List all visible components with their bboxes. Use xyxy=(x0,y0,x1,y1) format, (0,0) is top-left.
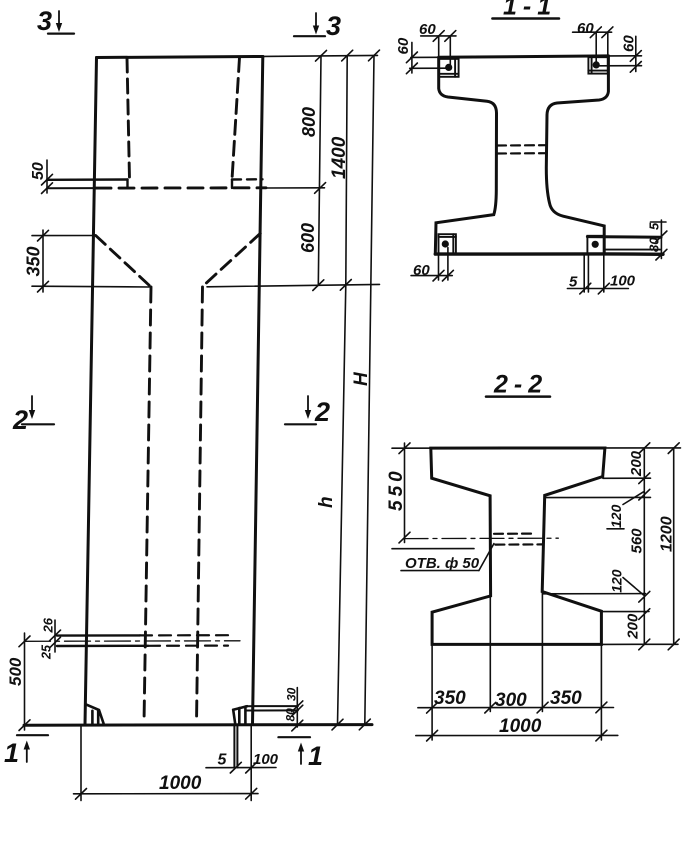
svg-text:1200: 1200 xyxy=(659,516,676,552)
svg-text:60: 60 xyxy=(413,262,430,279)
svg-text:560: 560 xyxy=(629,528,646,554)
svg-text:25: 25 xyxy=(40,644,54,660)
svg-text:5: 5 xyxy=(569,274,578,291)
svg-text:350: 350 xyxy=(24,246,44,276)
svg-text:2: 2 xyxy=(314,397,330,427)
svg-text:60: 60 xyxy=(621,35,638,52)
svg-text:350: 350 xyxy=(550,688,582,709)
svg-text:100: 100 xyxy=(253,751,279,768)
svg-text:3: 3 xyxy=(326,11,341,41)
svg-text:2: 2 xyxy=(12,405,28,435)
svg-text:60: 60 xyxy=(395,37,412,54)
svg-text:1400: 1400 xyxy=(329,136,350,179)
svg-text:H: H xyxy=(351,371,372,386)
svg-text:30: 30 xyxy=(285,687,299,701)
svg-text:300: 300 xyxy=(495,690,527,711)
svg-text:120: 120 xyxy=(608,504,624,528)
svg-text:100: 100 xyxy=(610,273,636,290)
svg-text:1000: 1000 xyxy=(499,716,542,737)
svg-text:600: 600 xyxy=(298,223,318,253)
svg-text:80: 80 xyxy=(647,237,662,252)
svg-text:60: 60 xyxy=(577,20,594,37)
svg-text:50: 50 xyxy=(30,162,47,180)
svg-text:80: 80 xyxy=(284,708,298,722)
svg-text:120: 120 xyxy=(609,569,625,593)
svg-text:350: 350 xyxy=(434,688,466,709)
svg-text:5: 5 xyxy=(218,752,228,769)
svg-text:500: 500 xyxy=(6,657,25,686)
svg-text:550: 550 xyxy=(386,467,407,511)
svg-text:h: h xyxy=(316,496,337,508)
svg-text:1: 1 xyxy=(308,741,323,771)
svg-text:200: 200 xyxy=(628,450,645,477)
svg-text:2-2: 2-2 xyxy=(493,371,548,399)
svg-text:1: 1 xyxy=(4,738,19,768)
svg-text:60: 60 xyxy=(419,21,436,38)
svg-text:200: 200 xyxy=(625,613,642,640)
svg-text:ОТВ. ф 50: ОТВ. ф 50 xyxy=(405,555,480,572)
svg-text:5: 5 xyxy=(647,222,662,230)
svg-text:800: 800 xyxy=(299,107,319,137)
svg-text:1000: 1000 xyxy=(159,773,202,794)
svg-text:26: 26 xyxy=(41,617,56,633)
svg-text:3: 3 xyxy=(37,6,52,36)
